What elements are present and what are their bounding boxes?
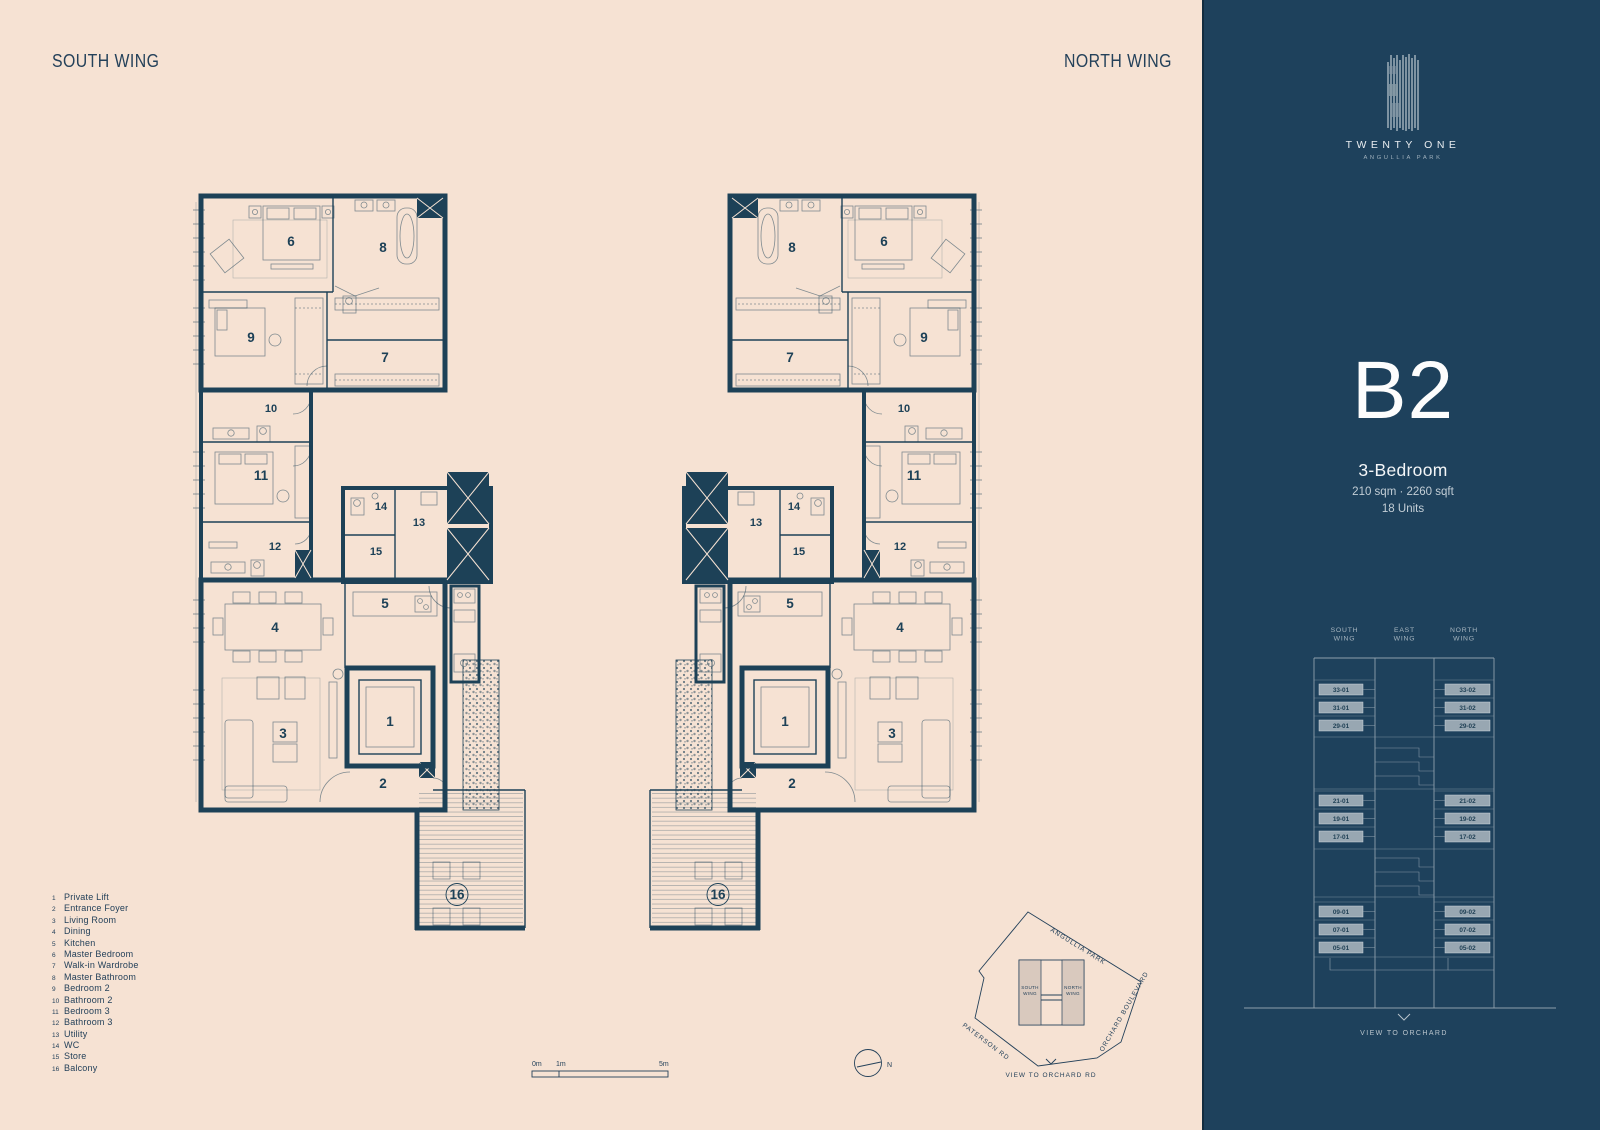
legend-item: 4Dining (52, 926, 139, 937)
legend-item: 12Bathroom 3 (52, 1017, 139, 1028)
svg-text:17-01: 17-01 (1333, 834, 1350, 841)
legend-item-label: Utility (64, 1029, 87, 1039)
room-number-label: 13 (413, 517, 425, 529)
legend-item-label: Dining (64, 926, 91, 936)
building-stack-diagram: SOUTHWINGEASTWINGNORTHWING33-0133-0231-0… (1204, 0, 1600, 1130)
room-number-label: 8 (788, 240, 796, 255)
room-number-label: 6 (287, 234, 295, 249)
svg-text:33-02: 33-02 (1459, 687, 1476, 694)
svg-text:0m: 0m (532, 1061, 542, 1068)
room-number-label: 13 (750, 517, 762, 529)
legend-item-number: 10 (52, 998, 64, 1005)
legend-item: 2Entrance Foyer (52, 903, 139, 914)
room-number-label: 10 (265, 403, 277, 415)
legend-item: 5Kitchen (52, 938, 139, 949)
floorplan-drawing: 12345678910111213141516 1234567891011121… (0, 0, 1202, 1130)
room-number-label: 11 (907, 468, 922, 483)
room-number-label: 15 (370, 546, 382, 558)
legend-item-number: 14 (52, 1043, 64, 1050)
svg-text:5m: 5m (659, 1061, 669, 1068)
room-number-label: 12 (269, 541, 281, 553)
legend-item-number: 6 (52, 952, 64, 959)
svg-text:WING: WING (1023, 991, 1037, 996)
scale-bar: 0m1m5m (532, 1061, 669, 1077)
svg-text:29-01: 29-01 (1333, 723, 1350, 730)
room-number-label: 9 (920, 330, 928, 345)
svg-text:SOUTH: SOUTH (1021, 985, 1039, 990)
svg-text:09-01: 09-01 (1333, 909, 1350, 916)
room-number-label: 6 (880, 234, 888, 249)
room-number-label: 11 (254, 468, 269, 483)
legend-item-number: 1 (52, 895, 64, 902)
legend-item: 1Private Lift (52, 892, 139, 903)
room-number-label: 14 (788, 501, 801, 513)
svg-text:NORTH: NORTH (1064, 985, 1082, 990)
svg-text:09-02: 09-02 (1459, 909, 1476, 916)
room-number-label: 3 (888, 726, 896, 741)
room-number-label: 15 (793, 546, 805, 558)
svg-text:ORCHARD BOULEVARD: ORCHARD BOULEVARD (1099, 970, 1151, 1053)
legend-item: 11Bedroom 3 (52, 1006, 139, 1017)
stack-column-header: NORTH (1450, 627, 1478, 634)
room-number-label: 8 (379, 240, 387, 255)
room-number-label: 1 (781, 714, 789, 729)
legend-item-label: Balcony (64, 1063, 97, 1073)
legend-item: 16Balcony (52, 1063, 139, 1074)
svg-text:17-02: 17-02 (1459, 834, 1476, 841)
svg-text:21-01: 21-01 (1333, 798, 1350, 805)
legend-item-label: Kitchen (64, 938, 95, 948)
south-wing-plan: 12345678910111213141516 (193, 196, 525, 930)
legend-item-label: Walk-in Wardrobe (64, 960, 139, 970)
legend-item: 7Walk-in Wardrobe (52, 960, 139, 971)
room-number-label: 5 (786, 596, 794, 611)
svg-text:21-02: 21-02 (1459, 798, 1476, 805)
info-panel: TWENTY ONE ANGULLIA PARK B2 3-Bedroom 21… (1202, 0, 1600, 1130)
legend-item-label: Living Room (64, 915, 116, 925)
svg-text:31-02: 31-02 (1459, 705, 1476, 712)
legend-item: 9Bedroom 2 (52, 983, 139, 994)
stack-view-label: VIEW TO ORCHARD (1360, 1030, 1448, 1037)
svg-text:07-01: 07-01 (1333, 927, 1350, 934)
svg-text:19-01: 19-01 (1333, 816, 1350, 823)
room-number-label: 7 (786, 350, 794, 365)
room-number-label: 4 (271, 620, 279, 635)
legend-item-number: 4 (52, 929, 64, 936)
room-number-label: 16 (710, 887, 726, 902)
legend-item: 15Store (52, 1051, 139, 1062)
north-arrow-compass: N (855, 1050, 893, 1077)
legend-item-label: Private Lift (64, 892, 109, 902)
legend-item: 14WC (52, 1040, 139, 1051)
stack-column-header: EAST (1394, 627, 1415, 634)
floorplan-brochure-page: SOUTH WING NORTH WING (0, 0, 1600, 1130)
legend-item-number: 3 (52, 918, 64, 925)
room-number-label: 9 (247, 330, 255, 345)
legend-item: 3Living Room (52, 915, 139, 926)
stack-column-header: WING (1394, 636, 1416, 643)
stack-column-header: SOUTH (1331, 627, 1359, 634)
legend-item-number: 5 (52, 941, 64, 948)
legend-item: 6Master Bedroom (52, 949, 139, 960)
room-number-label: 4 (896, 620, 904, 635)
room-number-label: 16 (449, 887, 465, 902)
legend-item-number: 15 (52, 1054, 64, 1061)
legend-item-number: 11 (52, 1009, 64, 1016)
stack-column-header: WING (1334, 636, 1356, 643)
room-number-label: 5 (381, 596, 389, 611)
legend-item-number: 7 (52, 963, 64, 970)
legend-item: 10Bathroom 2 (52, 995, 139, 1006)
svg-text:05-01: 05-01 (1333, 945, 1350, 952)
room-number-label: 2 (379, 776, 387, 791)
room-number-label: 14 (375, 501, 388, 513)
chevron-down-icon (1398, 1014, 1410, 1020)
legend-item-label: Bedroom 3 (64, 1006, 110, 1016)
legend-item-label: Master Bedroom (64, 949, 133, 959)
legend-item-label: Bathroom 2 (64, 995, 113, 1005)
legend-item: 13Utility (52, 1029, 139, 1040)
legend-item-label: Bathroom 3 (64, 1017, 113, 1027)
legend-item-label: Bedroom 2 (64, 983, 110, 993)
room-number-label: 2 (788, 776, 796, 791)
legend-item: 8Master Bathroom (52, 972, 139, 983)
svg-text:PATERSON RD: PATERSON RD (961, 1022, 1011, 1062)
room-number-label: 10 (898, 403, 910, 415)
svg-text:N: N (887, 1062, 892, 1069)
legend-item-number: 2 (52, 906, 64, 913)
svg-text:05-02: 05-02 (1459, 945, 1476, 952)
room-number-label: 7 (381, 350, 389, 365)
room-legend: 1Private Lift2Entrance Foyer3Living Room… (52, 892, 139, 1074)
legend-item-label: Store (64, 1051, 87, 1061)
legend-item-label: Master Bathroom (64, 972, 136, 982)
legend-item-number: 13 (52, 1032, 64, 1039)
svg-text:VIEW TO ORCHARD RD: VIEW TO ORCHARD RD (1005, 1072, 1096, 1079)
svg-text:31-01: 31-01 (1333, 705, 1350, 712)
svg-text:07-02: 07-02 (1459, 927, 1476, 934)
svg-text:1m: 1m (556, 1061, 566, 1068)
room-number-label: 12 (894, 541, 906, 553)
svg-text:33-01: 33-01 (1333, 687, 1350, 694)
legend-item-label: Entrance Foyer (64, 903, 128, 913)
stack-column-header: WING (1453, 636, 1475, 643)
legend-item-number: 16 (52, 1066, 64, 1073)
legend-item-number: 12 (52, 1020, 64, 1027)
legend-item-label: WC (64, 1040, 79, 1050)
room-number-label: 1 (386, 714, 394, 729)
legend-item-number: 9 (52, 986, 64, 993)
svg-text:19-02: 19-02 (1459, 816, 1476, 823)
north-wing-plan: 12345678910111213141516 (650, 196, 982, 930)
room-number-label: 3 (279, 726, 287, 741)
legend-item-number: 8 (52, 975, 64, 982)
site-location-plan: SOUTH WING NORTH WING ANGULLIA PARK PATE… (961, 912, 1151, 1079)
svg-text:29-02: 29-02 (1459, 723, 1476, 730)
svg-text:WING: WING (1066, 991, 1080, 996)
